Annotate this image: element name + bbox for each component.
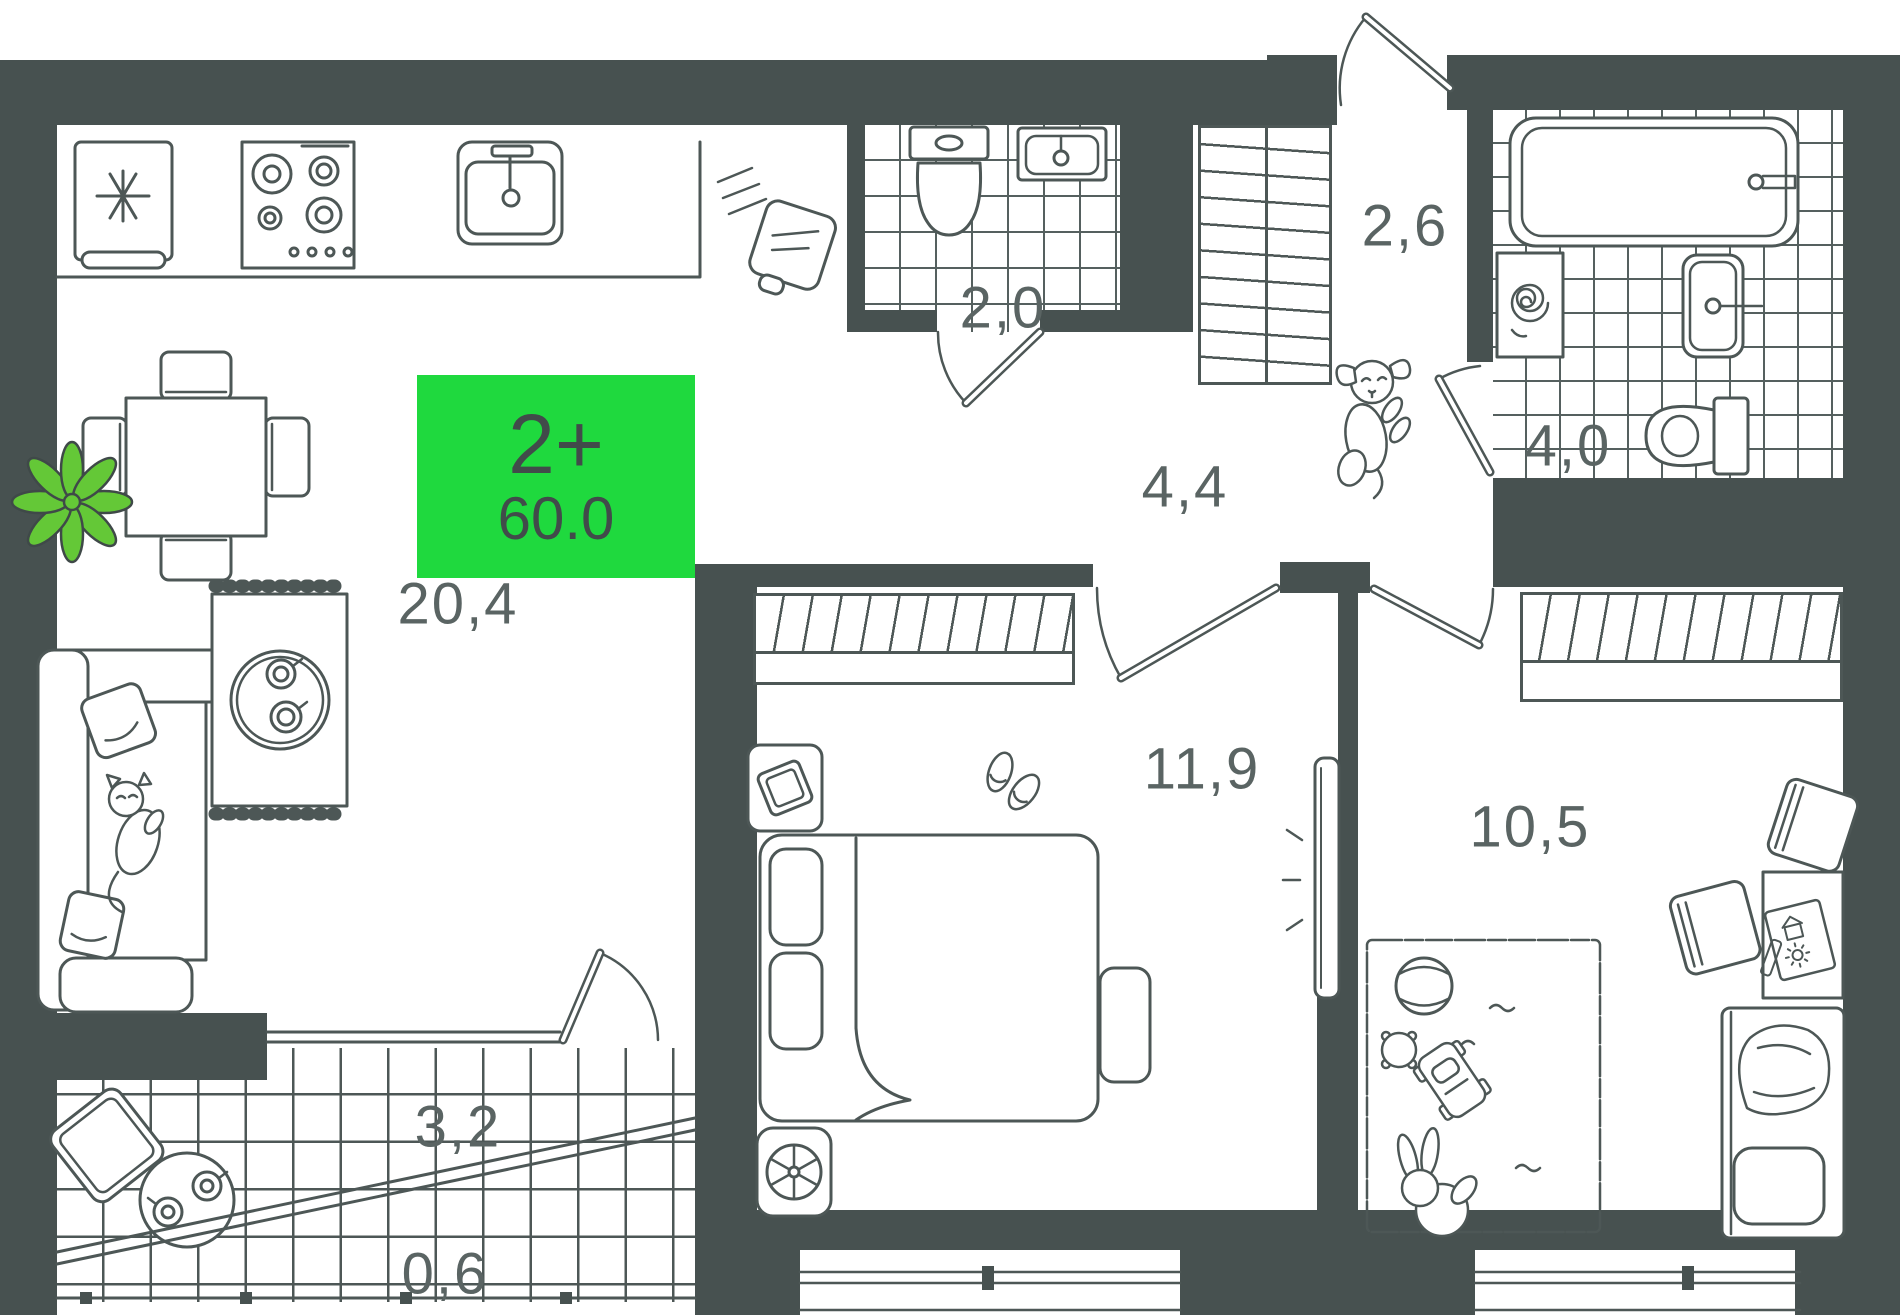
wall-top	[0, 60, 1267, 125]
wall-pier-3	[1795, 1250, 1900, 1315]
closet-divider	[1265, 128, 1268, 382]
wall-living-balcony	[0, 1013, 267, 1080]
bedroom-wardrobe	[753, 593, 1075, 685]
wall-wc-right	[1120, 125, 1193, 332]
wall-kitchen-wc	[847, 125, 865, 332]
vent-ottoman	[757, 1128, 831, 1216]
rug-stool	[1382, 1032, 1416, 1068]
fridge-icon	[75, 142, 172, 268]
rug	[212, 586, 347, 814]
wall-top-entry	[1267, 55, 1337, 125]
bedroom-window	[800, 1266, 1180, 1310]
badge-total-area: 60.0	[498, 486, 615, 552]
wall-pier-1	[695, 1250, 800, 1315]
wall-pier-2	[1180, 1250, 1475, 1315]
door-balcony	[563, 953, 658, 1040]
label-living: 20,4	[398, 571, 519, 638]
wall-corridor-right	[1467, 105, 1493, 362]
kids-rug	[1367, 940, 1600, 1232]
door-entry	[1340, 17, 1450, 105]
wall-right	[1843, 55, 1900, 1250]
door-kids	[1374, 589, 1493, 645]
kids-window	[1475, 1266, 1800, 1310]
ball-icon	[1396, 958, 1452, 1014]
bedside-table	[748, 745, 822, 831]
bed	[760, 835, 1098, 1121]
floor-plan: 20,4 2,0 2,6 4,4 4,0 11,9 10,5 3,2 0,6 2…	[0, 0, 1900, 1315]
kids-chair-2	[1668, 879, 1762, 976]
dining-set	[83, 352, 309, 580]
door-wc	[938, 332, 1040, 403]
kids-desk	[1760, 872, 1843, 998]
sofa	[38, 650, 238, 1012]
tv	[1283, 758, 1339, 998]
apartment-badge: 2+ 60.0	[417, 375, 695, 578]
slippers-icon	[983, 749, 1045, 814]
label-balcony: 3,2	[415, 1094, 502, 1161]
wall-kids-top	[1493, 478, 1845, 587]
wall-bottom-strip	[695, 1210, 1845, 1250]
wall-wc-bottom-l	[847, 310, 937, 332]
kitchen-counter	[57, 142, 700, 277]
balcony-tiles	[57, 1048, 695, 1302]
label-kids: 10,5	[1470, 794, 1591, 861]
wall-wc-bottom-r	[1040, 310, 1193, 332]
wall-left	[0, 60, 57, 1315]
cat-icon	[107, 773, 167, 912]
label-hall: 4,4	[1142, 454, 1229, 521]
label-bedroom: 11,9	[1144, 736, 1261, 803]
wall-bedroom-top	[727, 564, 1093, 587]
label-wc: 2,0	[960, 275, 1047, 342]
label-entry: 2,6	[1362, 193, 1449, 260]
door-bathroom	[1439, 366, 1490, 472]
kids-bed	[1722, 1008, 1844, 1238]
label-balcony-ledge: 0,6	[402, 1241, 489, 1308]
hall-closet	[1198, 125, 1332, 385]
label-bathroom: 4,0	[1525, 413, 1612, 480]
cutting-board-icon	[718, 168, 839, 306]
badge-rooms-count: 2+	[508, 402, 604, 486]
toy-car-icon	[1410, 1036, 1494, 1124]
wall-bedroom-left	[695, 564, 757, 1248]
door-bedroom	[1097, 588, 1276, 678]
wall-top-right	[1447, 55, 1900, 110]
kitchen-sink-icon	[458, 142, 562, 244]
kids-wardrobe	[1520, 592, 1843, 702]
bed-bench	[1100, 968, 1150, 1082]
stove-icon	[242, 142, 354, 268]
dog-icon	[1334, 360, 1414, 498]
balcony-window	[267, 1032, 560, 1042]
